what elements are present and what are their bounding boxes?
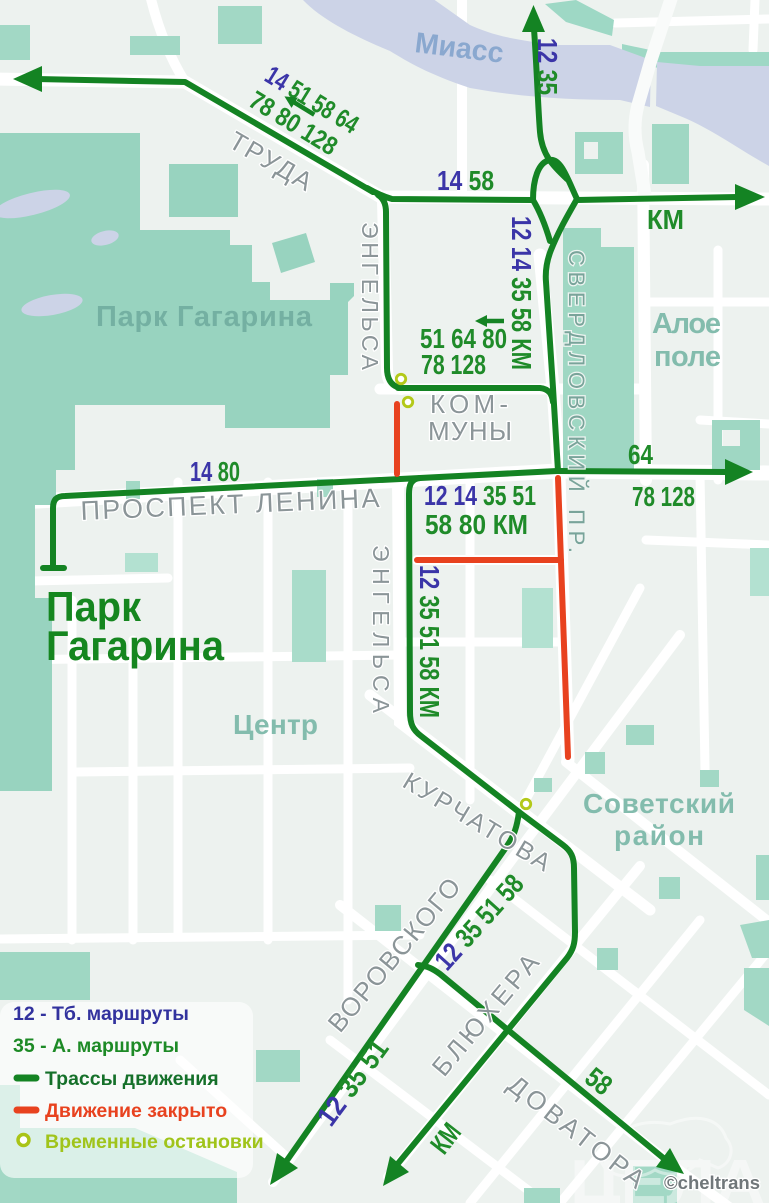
svg-text:район: район [614,820,704,851]
svg-text:58 80 КМ: 58 80 КМ [425,509,528,540]
svg-text:Алое: Алое [652,308,721,340]
svg-text:Движение закрыто: Движение закрыто [45,1100,227,1122]
svg-text:Советский: Советский [583,788,735,819]
svg-text:МУНЫ: МУНЫ [428,416,512,446]
svg-text:Трассы движения: Трассы движения [45,1068,219,1090]
svg-text:12 - Тб. маршруты: 12 - Тб. маршруты [13,1003,189,1025]
svg-text:35 - А. маршруты: 35 - А. маршруты [13,1035,179,1057]
svg-text:12 35: 12 35 [532,38,563,95]
svg-text:14 58: 14 58 [437,165,494,196]
svg-text:12 14 35 51: 12 14 35 51 [424,480,536,511]
svg-text:78 128: 78 128 [632,481,695,512]
svg-text:поле: поле [654,341,721,373]
svg-text:12 35 51 58 КМ: 12 35 51 58 КМ [414,565,445,718]
svg-text:12 14 35 58 КМ: 12 14 35 58 КМ [506,216,537,370]
svg-text:Временные остановки: Временные остановки [45,1131,264,1153]
svg-text:©cheltrans: ©cheltrans [664,1173,760,1193]
svg-text:Гагарина: Гагарина [46,622,225,669]
svg-text:Парк Гагарина: Парк Гагарина [96,301,313,333]
svg-text:Центр: Центр [233,709,318,740]
svg-text:14 80: 14 80 [190,456,240,487]
svg-text:64: 64 [628,439,653,470]
svg-text:78 128: 78 128 [421,349,486,380]
svg-text:КМ: КМ [647,204,684,235]
